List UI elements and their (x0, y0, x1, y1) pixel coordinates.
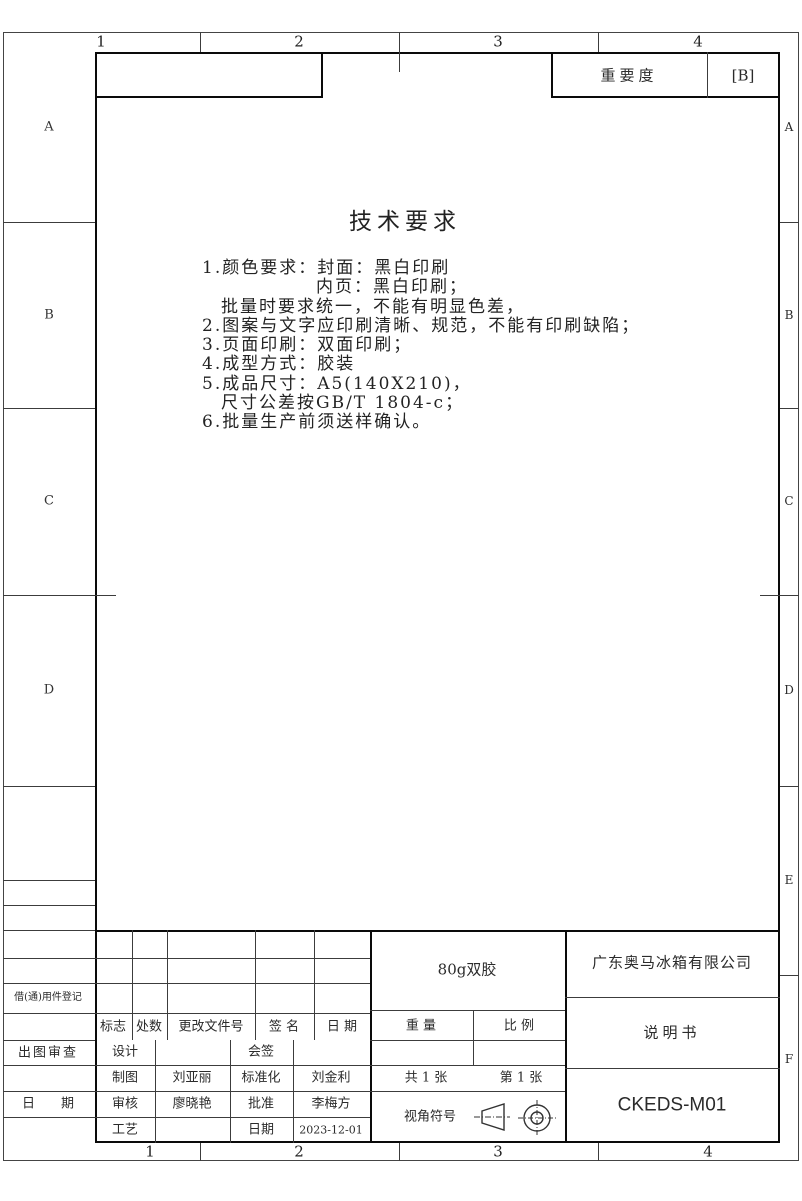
grid-line (370, 1010, 565, 1011)
approval-role-check: 审核 (112, 1098, 138, 1111)
zone-letter-right-f: F (785, 1053, 793, 1065)
grid-line (3, 408, 95, 409)
tech-requirement-line: 1.颜色要求：封面：黑白印刷 (202, 259, 640, 278)
approval-date-value: 2023-12-01 (299, 1125, 362, 1136)
approval-name-check: 廖晓艳 (172, 1098, 211, 1111)
grid-line (314, 930, 315, 1040)
approval-role-design: 设计 (112, 1046, 138, 1059)
tech-requirement-line: 5.成品尺寸：A5(140X210)， (202, 375, 640, 394)
grid-line (780, 975, 799, 976)
zone-letter-right-b: B (785, 309, 794, 321)
document-title: 说明书 (643, 1026, 700, 1041)
grid-line (780, 786, 799, 787)
date-row-label: 日 期 (22, 1098, 74, 1111)
grid-line (95, 1091, 565, 1092)
drawing-review-label: 出图审查 (18, 1047, 78, 1060)
grid-line (200, 1143, 201, 1161)
drawing-sheet: 1 2 3 4 1 2 3 4 A B C D 借(通)用件登记 出图审查 日 … (0, 0, 802, 1201)
grid-line (473, 1010, 474, 1065)
zone-label-top-4: 4 (693, 35, 703, 50)
grid-line (370, 1040, 565, 1041)
grid-line (598, 1143, 599, 1161)
projection-target-icon (518, 1099, 556, 1137)
grid-line (95, 1065, 565, 1066)
tech-requirement-line: 4.成型方式：胶装 (202, 355, 640, 374)
grid-line (95, 983, 370, 984)
grid-line (565, 997, 780, 998)
weight-label: 重 量 (406, 1020, 436, 1033)
zone-letter-left-c: C (44, 495, 54, 508)
zone-letter-right-d: D (784, 684, 794, 696)
title-block-top-border (95, 930, 780, 932)
grid-line (3, 1040, 95, 1041)
tech-requirements-title: 技术要求 (349, 202, 461, 236)
approval-name-draft: 刘亚丽 (172, 1072, 211, 1085)
top-left-box (95, 52, 323, 98)
grid-line (200, 32, 201, 52)
grid-line (3, 1065, 95, 1066)
grid-line (132, 930, 133, 1040)
borrow-register-label: 借(通)用件登记 (14, 993, 82, 1003)
grid-line (3, 1091, 95, 1092)
change-header-date: 日 期 (327, 1021, 357, 1034)
approval-role-countersign: 会签 (248, 1046, 274, 1059)
grid-line (3, 880, 95, 881)
grid-line (95, 1117, 370, 1118)
grid-line (95, 958, 370, 959)
grid-line (3, 786, 95, 787)
zone-label-top-3: 3 (493, 35, 503, 50)
approval-name-approve: 李梅方 (311, 1098, 350, 1111)
grid-line (780, 408, 799, 409)
change-header-signature: 签 名 (269, 1021, 299, 1034)
approval-date-label: 日期 (248, 1124, 274, 1137)
company-name: 广东奥马冰箱有限公司 (592, 956, 752, 971)
first-angle-projection-icon (473, 1100, 511, 1135)
grid-line (707, 52, 708, 98)
importance-value: [B] (732, 69, 755, 84)
approval-role-draft: 制图 (112, 1072, 138, 1085)
change-header-mark: 标志 (100, 1021, 126, 1034)
drawing-number: CKEDS-M01 (618, 1096, 727, 1115)
tech-requirement-line: 尺寸公差按GB/T 1804-c； (202, 394, 640, 413)
grid-line (3, 905, 95, 906)
zone-label-top-2: 2 (294, 35, 304, 50)
grid-line (255, 930, 256, 1040)
zone-label-bottom-1: 1 (145, 1145, 155, 1160)
grid-line (3, 958, 95, 959)
center-mark-right (760, 595, 799, 596)
view-symbol-label: 视角符号 (404, 1111, 456, 1124)
tech-requirement-line: 2.图案与文字应印刷清晰、规范，不能有印刷缺陷； (202, 317, 640, 336)
sheet-number: 第 1 张 (500, 1072, 543, 1085)
grid-line (598, 32, 599, 52)
grid-line (565, 1068, 780, 1069)
grid-line (370, 930, 372, 1143)
tech-requirement-line: 3.页面印刷：双面印刷； (202, 336, 640, 355)
zone-letter-left-b: B (44, 309, 54, 322)
grid-line (167, 930, 168, 1040)
approval-role-process: 工艺 (112, 1124, 138, 1137)
grid-line (95, 1013, 370, 1014)
grid-line (780, 222, 799, 223)
grid-line (3, 930, 95, 931)
zone-letter-right-a: A (785, 121, 794, 133)
tech-requirement-line: 批量时要求统一，不能有明显色差， (202, 298, 640, 317)
change-header-doc-no: 更改文件号 (178, 1021, 243, 1034)
approval-name-standardize: 刘金利 (311, 1072, 350, 1085)
grid-line (3, 983, 95, 984)
tech-requirements-list: 1.颜色要求：封面：黑白印刷 内页：黑白印刷； 批量时要求统一，不能有明显色差，… (202, 259, 640, 433)
approval-role-approve: 批准 (248, 1098, 274, 1111)
tech-requirement-line: 6.批量生产前须送样确认。 (202, 413, 640, 432)
change-header-count: 处数 (136, 1021, 162, 1034)
zone-letter-right-c: C (784, 495, 793, 507)
zone-letter-left-a: A (44, 121, 53, 134)
grid-line (399, 1143, 400, 1161)
zone-label-bottom-3: 3 (493, 1145, 503, 1160)
grid-line (3, 1013, 95, 1014)
tech-requirement-line: 内页：黑白印刷； (202, 278, 640, 297)
zone-label-bottom-2: 2 (294, 1145, 304, 1160)
zone-label-top-1: 1 (96, 35, 106, 50)
zone-letter-right-e: E (785, 874, 794, 886)
sheet-total: 共 1 张 (405, 1072, 448, 1085)
center-mark-left (3, 595, 116, 596)
center-mark-top (399, 32, 400, 72)
material-spec: 80g双胶 (438, 963, 497, 978)
grid-line (3, 222, 95, 223)
importance-label: 重要度 (600, 69, 657, 84)
scale-label: 比 例 (504, 1020, 534, 1033)
approval-role-standardize: 标准化 (241, 1072, 280, 1085)
zone-label-bottom-4: 4 (703, 1145, 713, 1160)
zone-letter-left-d: D (44, 684, 54, 697)
grid-line (565, 930, 567, 1143)
grid-line (3, 1117, 95, 1118)
